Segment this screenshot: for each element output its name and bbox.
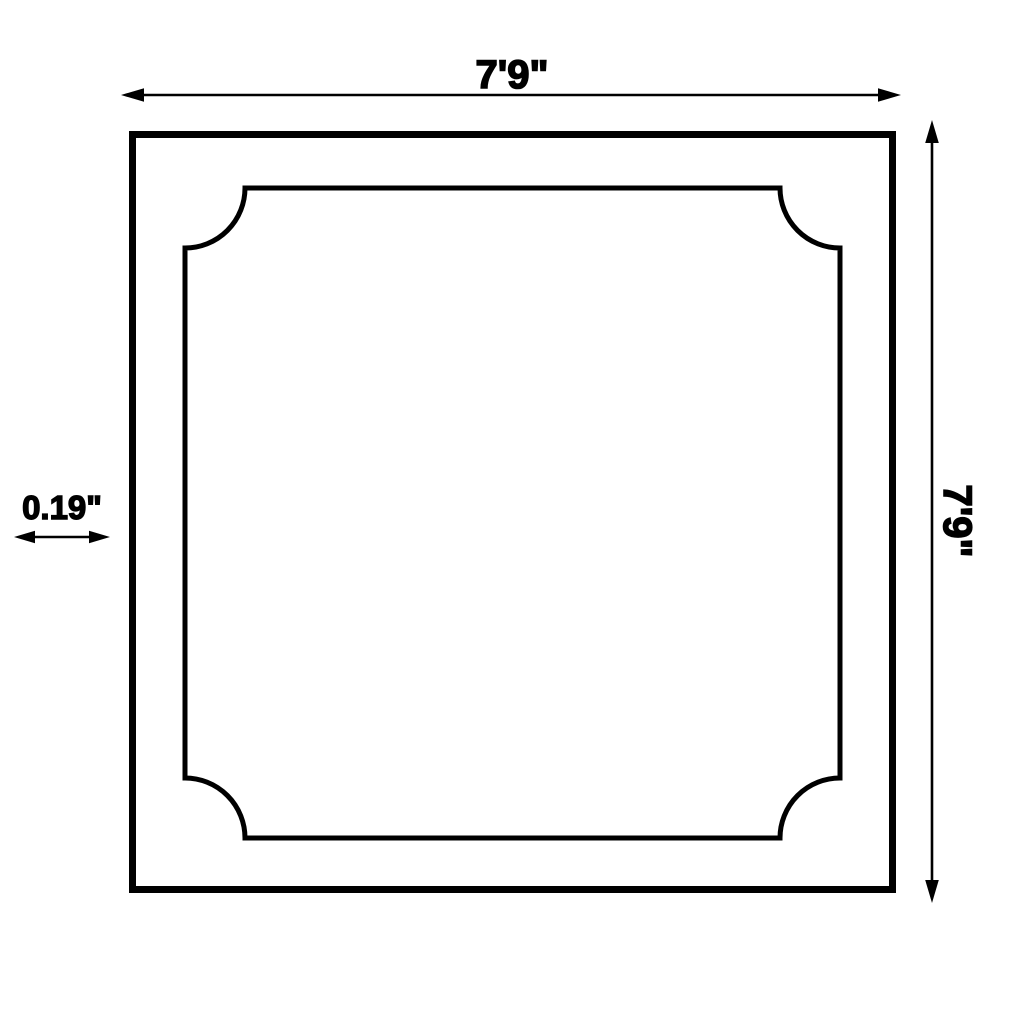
arrowhead-left-icon xyxy=(121,88,144,102)
left-thickness-dimension-arrow xyxy=(14,531,110,543)
outer-square-outline xyxy=(133,135,893,890)
arrowhead-left-small-icon xyxy=(14,531,35,543)
arrowhead-up-icon xyxy=(925,120,939,143)
arrowhead-right-small-icon xyxy=(89,531,110,543)
top-width-dimension-label: 7'9" xyxy=(476,53,549,97)
inner-scalloped-frame-outline xyxy=(185,188,840,838)
arrowhead-down-icon xyxy=(925,880,939,903)
right-height-dimension-label: 7'9" xyxy=(935,485,979,558)
panel-dimension-diagram: 7'9" 7'9" 0.19" xyxy=(0,0,1024,1024)
dimension-drawing-canvas: 7'9" 7'9" 0.19" xyxy=(0,0,1024,1024)
arrowhead-right-icon xyxy=(878,88,901,102)
left-thickness-dimension-label: 0.19" xyxy=(22,489,102,526)
